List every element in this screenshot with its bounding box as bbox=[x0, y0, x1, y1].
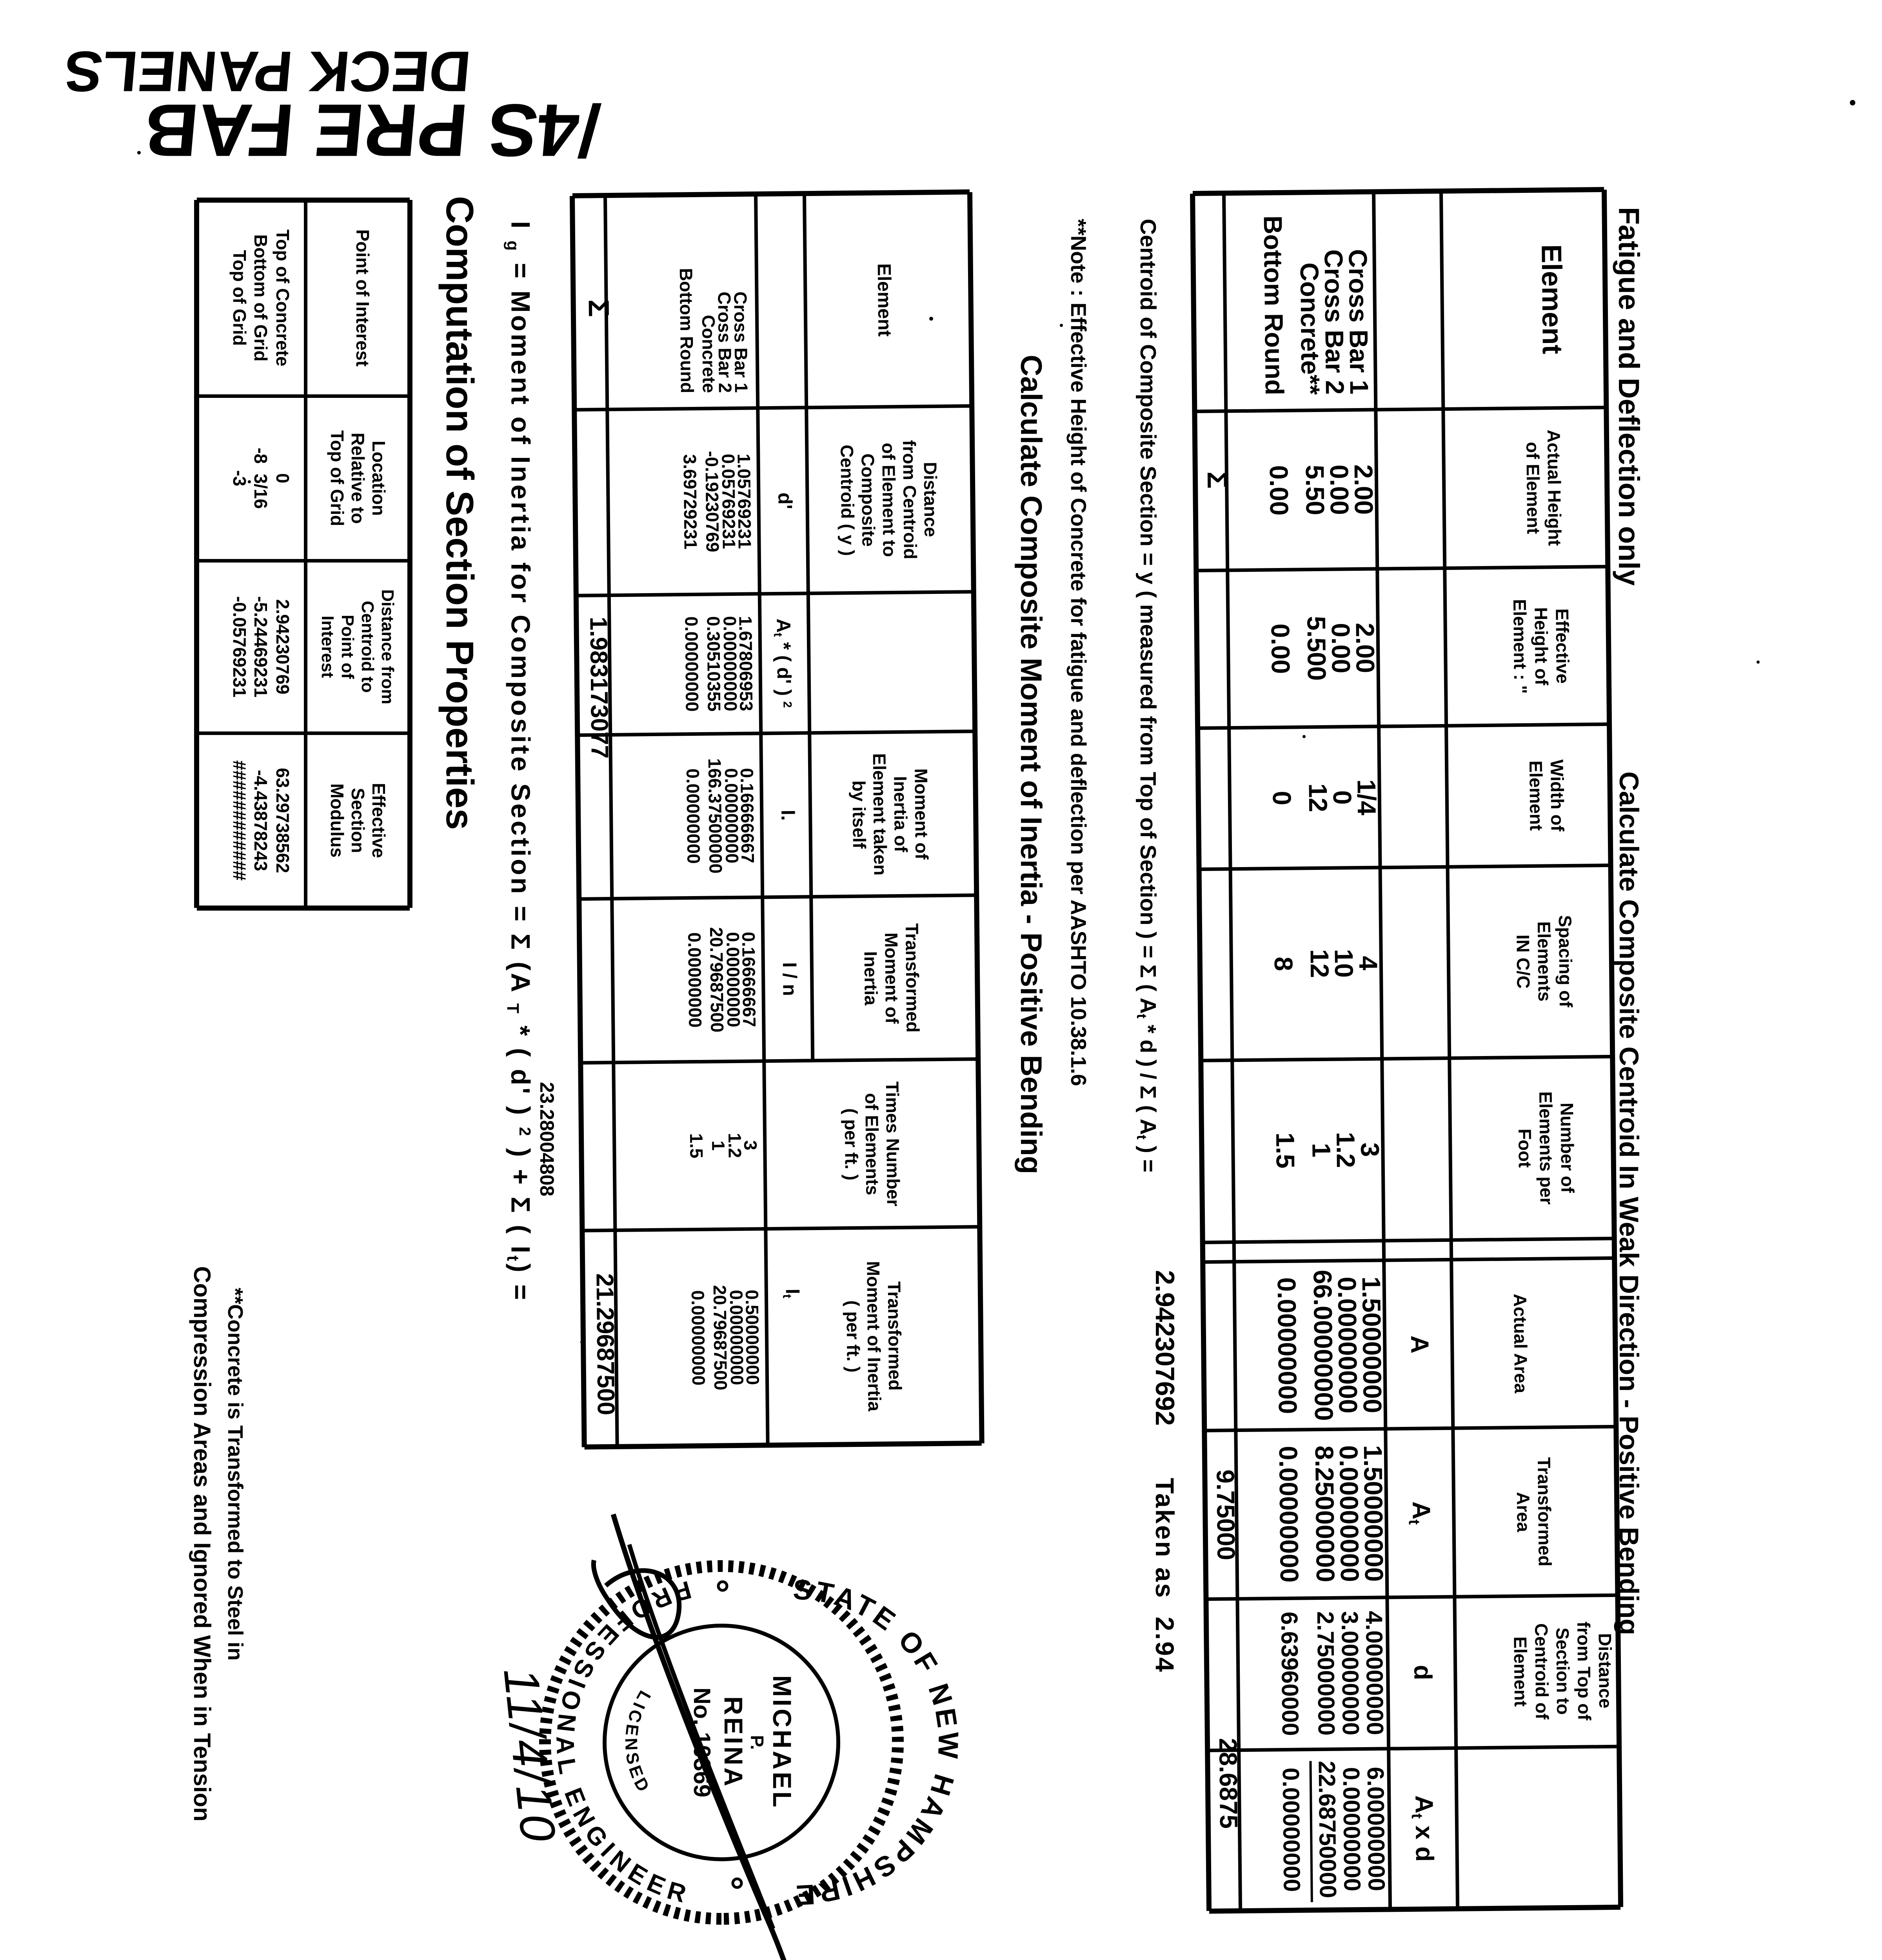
svg-text:REINA: REINA bbox=[719, 1696, 748, 1788]
svg-text:P.: P. bbox=[747, 1735, 767, 1750]
svg-text:STATE OF NEW HAMPSHIRE: STATE OF NEW HAMPSHIRE bbox=[792, 1574, 961, 1911]
svg-text:LICENSED: LICENSED bbox=[621, 1687, 654, 1797]
svg-text:MICHAEL: MICHAEL bbox=[768, 1675, 797, 1810]
